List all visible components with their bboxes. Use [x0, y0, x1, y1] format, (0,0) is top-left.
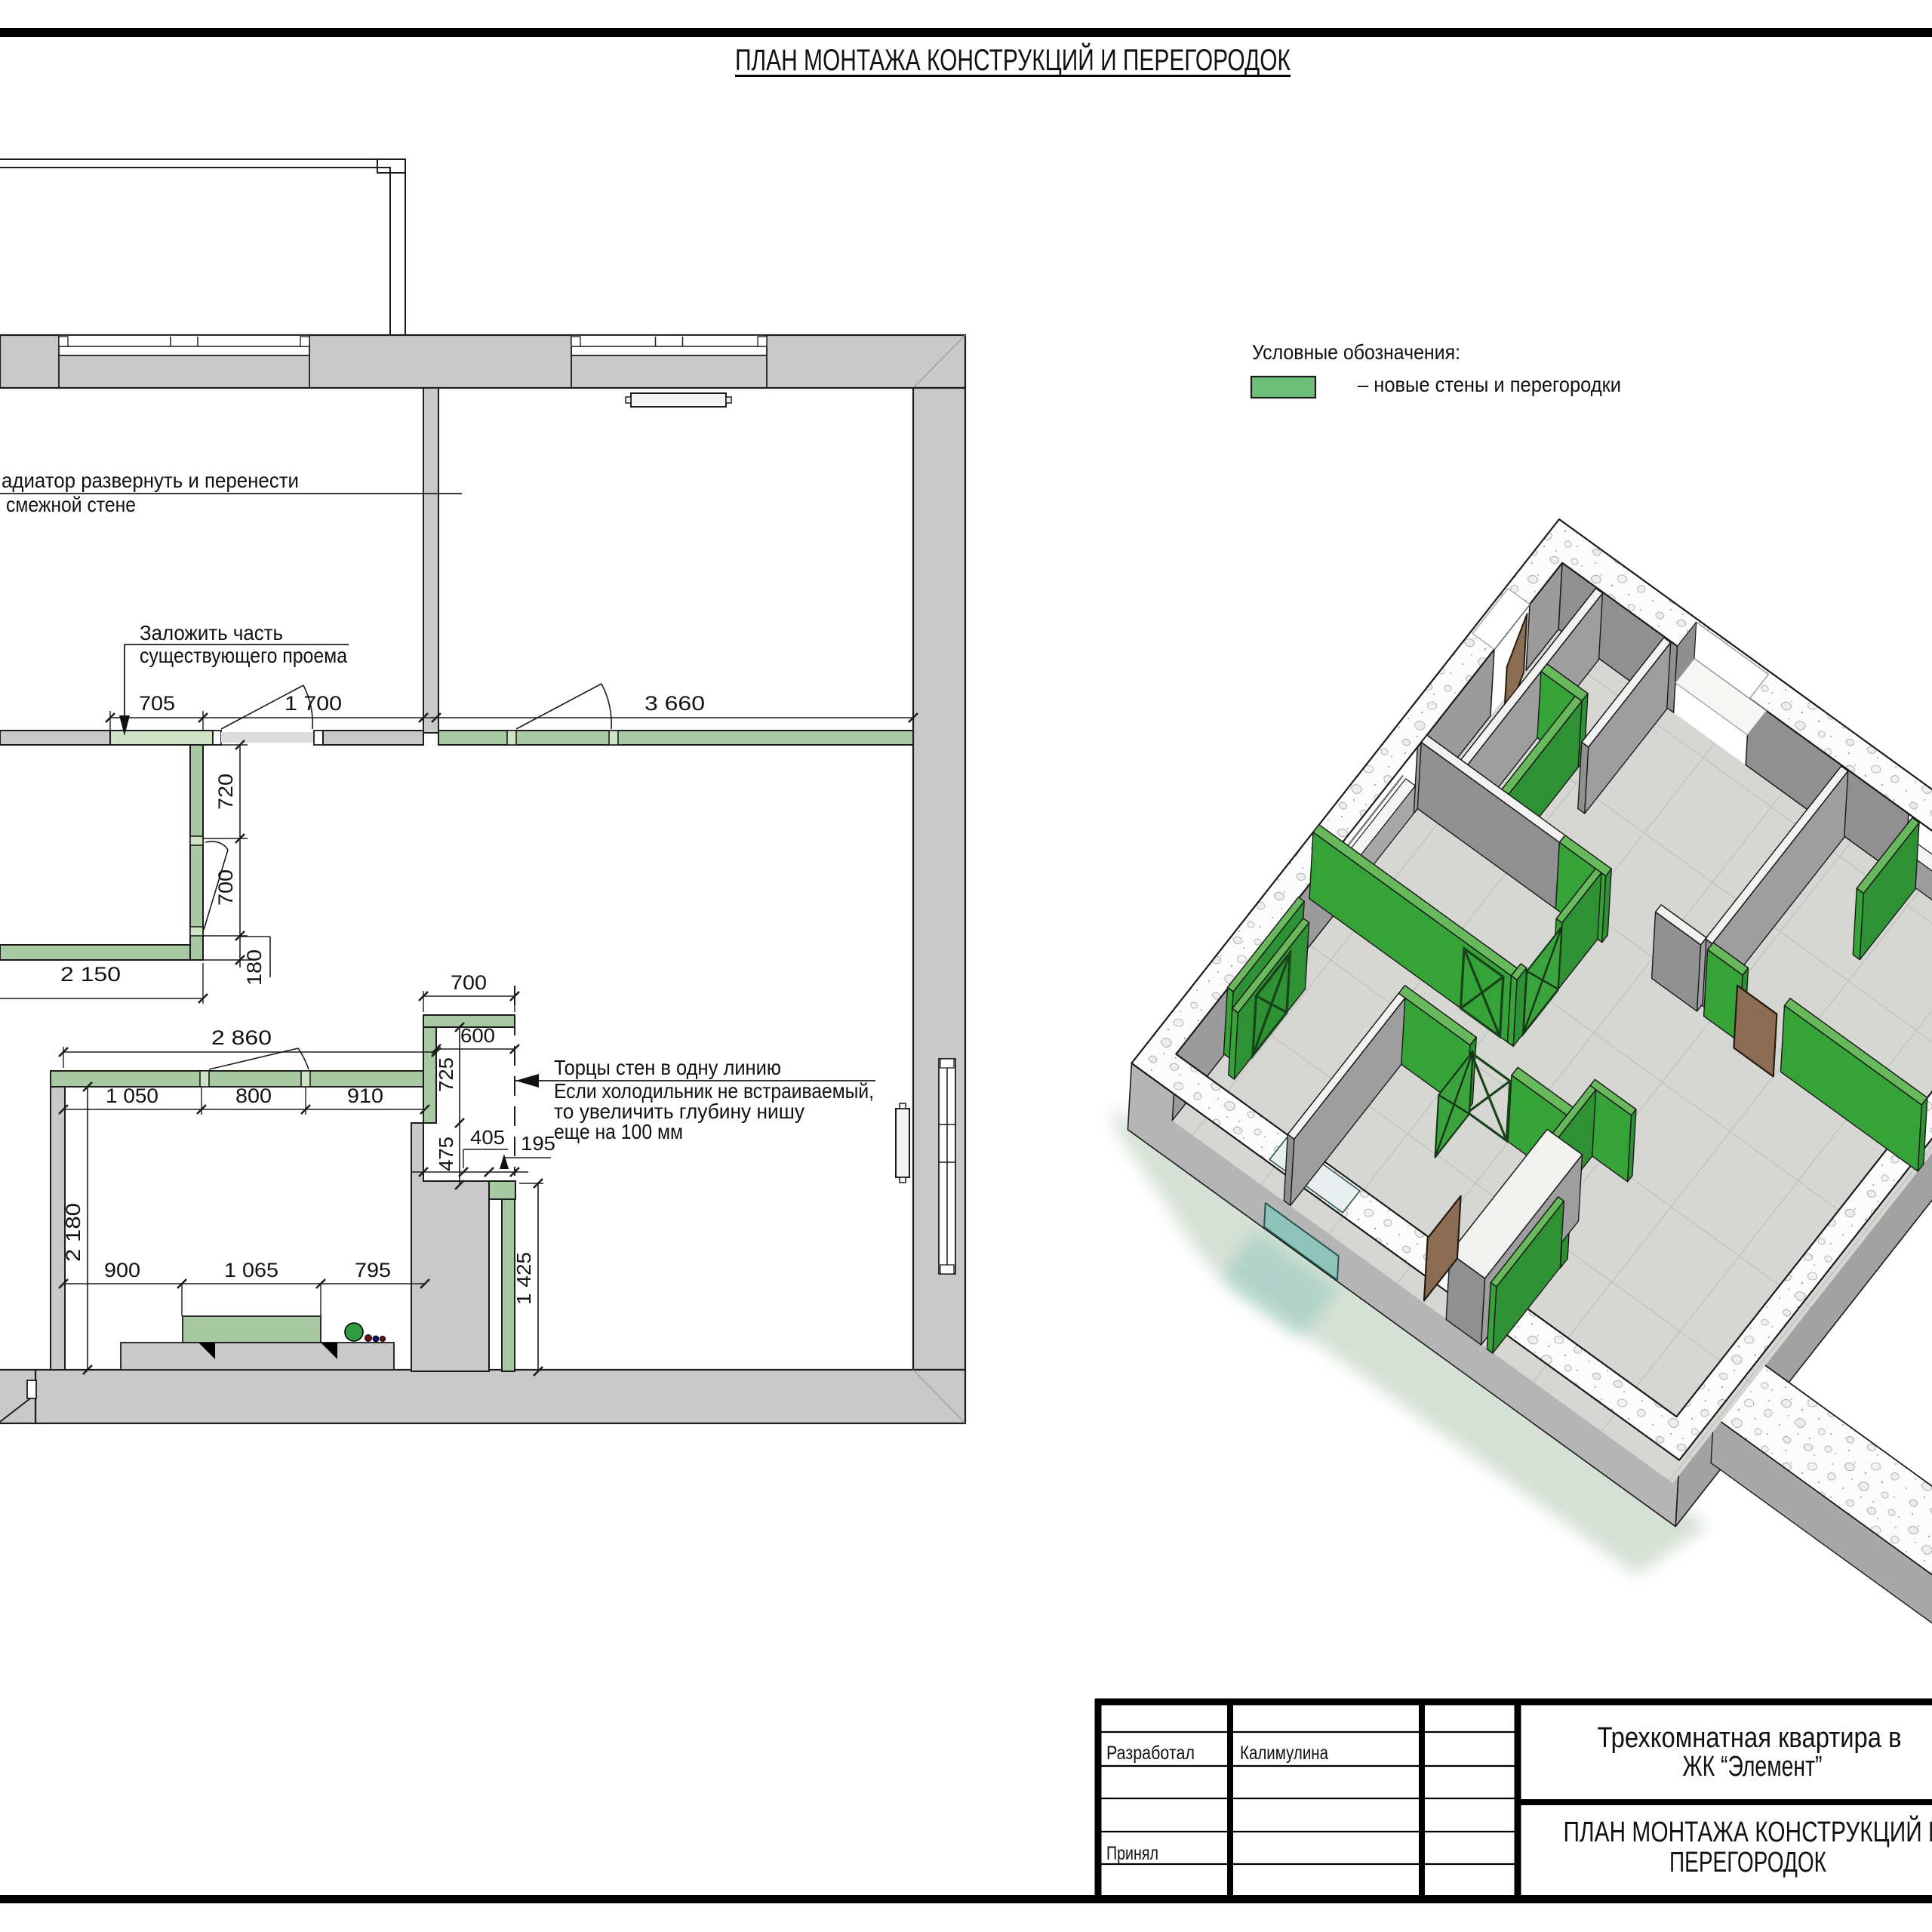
svg-text:еще на 100 мм: еще на 100 мм [554, 1120, 683, 1143]
svg-text:475: 475 [435, 1137, 457, 1171]
svg-text:405: 405 [470, 1126, 505, 1149]
svg-text:2 150: 2 150 [60, 963, 121, 986]
svg-text:Трехкомнатная квартира в: Трехкомнатная квартира в [1598, 1722, 1902, 1754]
svg-text:180: 180 [243, 949, 266, 986]
svg-text:1 425: 1 425 [512, 1252, 535, 1305]
svg-text:910: 910 [347, 1084, 383, 1107]
svg-text:Принял: Принял [1106, 1843, 1158, 1864]
svg-text:существующего проема: существующего проема [140, 644, 347, 667]
svg-text:Торцы стен в одну линию: Торцы стен в одну линию [554, 1056, 781, 1079]
svg-text:1 065: 1 065 [224, 1259, 278, 1281]
svg-text:Условные обозначения:: Условные обозначения: [1252, 340, 1460, 364]
svg-text:ЖК “Элемент”: ЖК “Элемент” [1683, 1751, 1823, 1783]
svg-text:ПЕРЕГОРОДОК: ПЕРЕГОРОДОК [1669, 1847, 1826, 1878]
svg-text:Калимулина: Калимулина [1240, 1743, 1328, 1764]
svg-text:795: 795 [355, 1259, 391, 1281]
svg-text:ПЛАН МОНТАЖА КОНСТРУКЦИЙ И: ПЛАН МОНТАЖА КОНСТРУКЦИЙ И [1564, 1814, 1932, 1848]
svg-text:700: 700 [451, 971, 487, 994]
svg-text:– новые стены и перегородки: – новые стены и перегородки [1358, 373, 1621, 396]
svg-text:2 860: 2 860 [211, 1026, 272, 1049]
svg-text:1 700: 1 700 [285, 692, 342, 715]
svg-text:смежной стене: смежной стене [6, 493, 136, 516]
svg-text:3 660: 3 660 [645, 692, 705, 715]
svg-text:1 050: 1 050 [106, 1084, 158, 1107]
svg-text:720: 720 [214, 774, 237, 810]
svg-text:700: 700 [214, 869, 237, 906]
svg-text:800: 800 [235, 1084, 272, 1107]
svg-text:195: 195 [521, 1132, 555, 1155]
svg-text:725: 725 [435, 1057, 457, 1092]
svg-text:Разработал: Разработал [1106, 1743, 1195, 1764]
svg-text:Заложить часть: Заложить часть [140, 621, 283, 645]
svg-text:адиатор развернуть и перенести: адиатор развернуть и перенести [2, 469, 299, 492]
svg-text:900: 900 [104, 1259, 140, 1281]
svg-text:705: 705 [139, 692, 175, 715]
svg-text:2 180: 2 180 [62, 1203, 85, 1262]
svg-text:600: 600 [460, 1024, 495, 1047]
svg-text:ПЛАН МОНТАЖА КОНСТРУКЦИЙ И ПЕР: ПЛАН МОНТАЖА КОНСТРУКЦИЙ И ПЕРЕГОРОДОК [735, 42, 1291, 77]
